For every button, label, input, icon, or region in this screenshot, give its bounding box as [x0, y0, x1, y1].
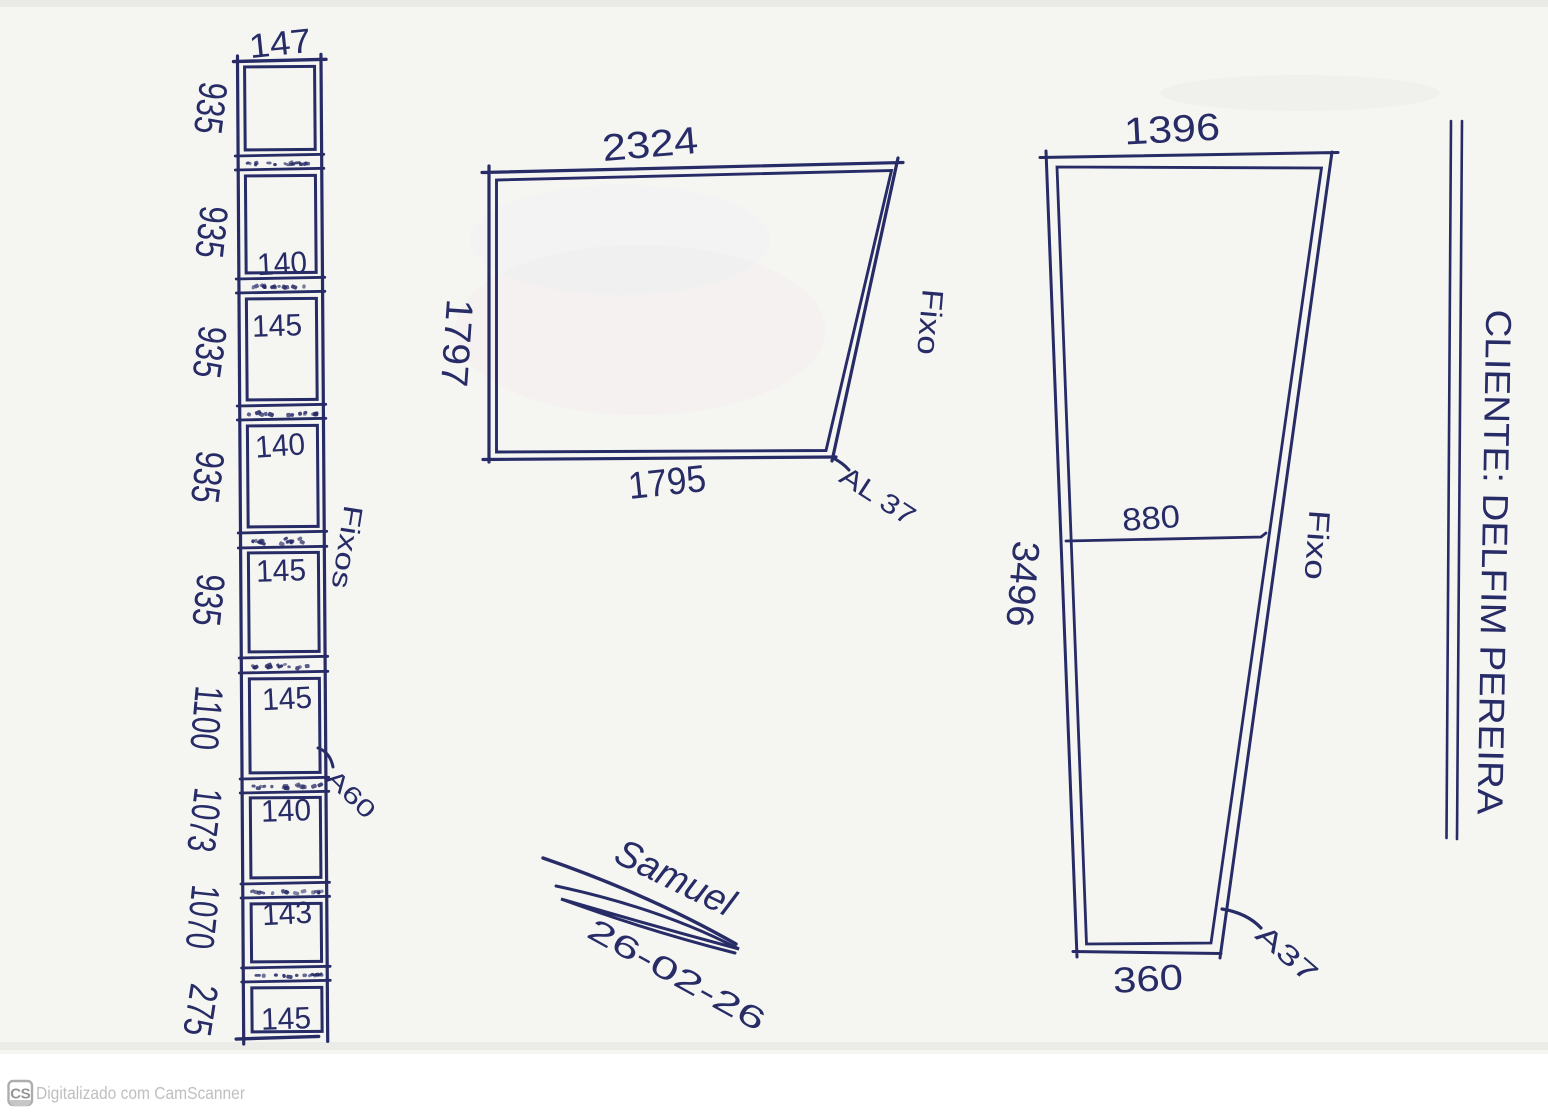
svg-text:CS: CS [10, 1086, 30, 1103]
svg-text:1100: 1100 [181, 684, 230, 752]
svg-text:Digitalizado com CamScanner: Digitalizado com CamScanner [36, 1083, 245, 1103]
svg-text:145: 145 [261, 680, 313, 718]
svg-text:880: 880 [1121, 498, 1181, 538]
svg-text:3496: 3496 [997, 539, 1046, 628]
svg-text:1797: 1797 [432, 298, 480, 389]
svg-text:935: 935 [182, 449, 232, 506]
svg-text:935: 935 [184, 323, 235, 381]
svg-text:Fixo: Fixo [1298, 509, 1336, 581]
svg-text:140: 140 [256, 245, 308, 283]
svg-text:935: 935 [185, 80, 235, 137]
svg-text:275: 275 [174, 981, 226, 1039]
svg-text:145: 145 [255, 552, 306, 589]
svg-text:2324: 2324 [600, 120, 699, 170]
svg-text:143: 143 [261, 895, 313, 933]
svg-text:1396: 1396 [1123, 107, 1221, 154]
svg-text:1795: 1795 [626, 458, 708, 508]
svg-text:145: 145 [251, 307, 302, 344]
svg-text:145: 145 [260, 1000, 311, 1037]
svg-text:360: 360 [1112, 956, 1184, 1001]
svg-text:1070: 1070 [177, 883, 227, 951]
svg-text:935: 935 [186, 204, 235, 260]
svg-text:140: 140 [254, 426, 306, 464]
svg-text:140: 140 [260, 792, 311, 829]
svg-text:1073: 1073 [178, 786, 229, 855]
svg-text:147: 147 [247, 22, 313, 66]
svg-text:935: 935 [183, 572, 232, 628]
svg-text:Fixo: Fixo [910, 288, 949, 357]
